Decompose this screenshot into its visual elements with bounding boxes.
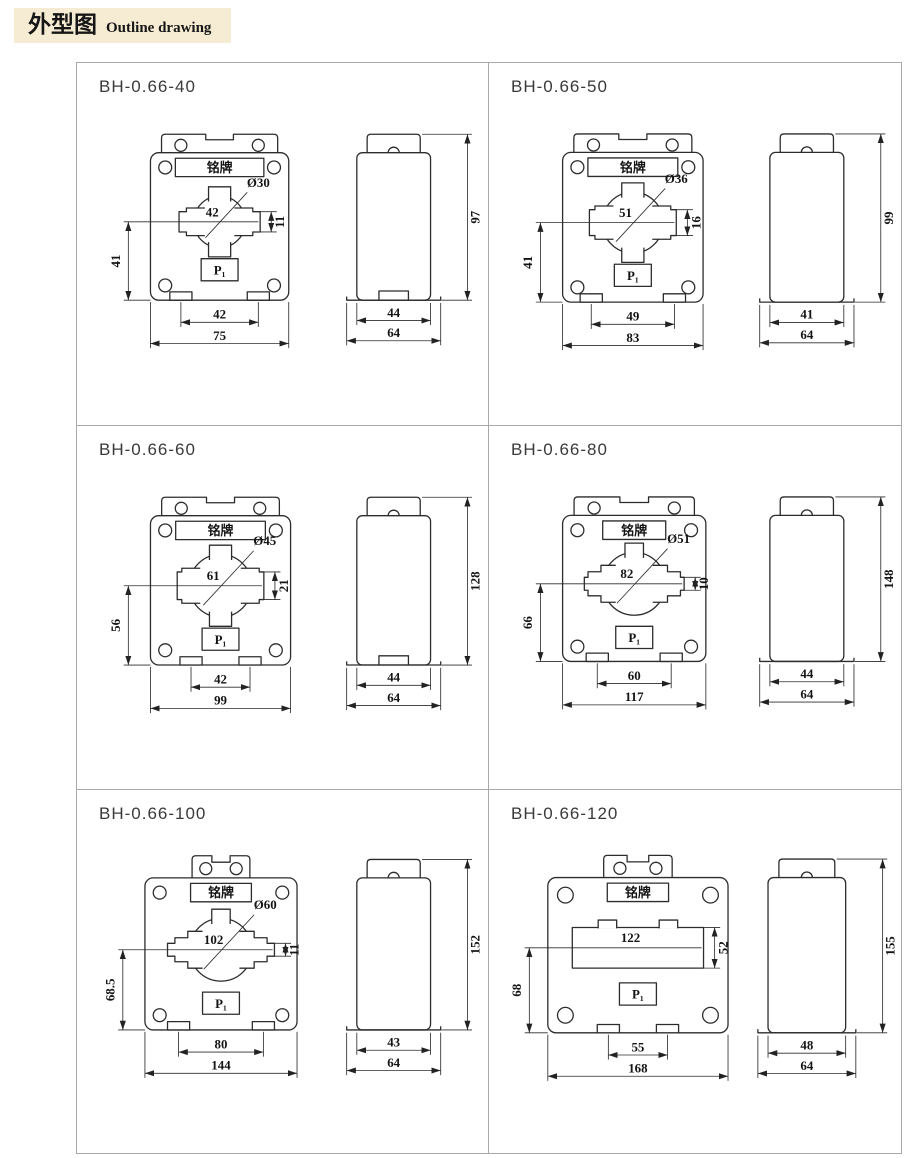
views: 铭牌5116Ø36P₁414983 416499 [509,107,901,426]
left-height-label: 66 [520,616,535,629]
side-height-label: 99 [881,212,896,225]
left-height-label: 56 [109,619,123,632]
side-view: 4364152 [331,834,488,1153]
views: 铭牌12252P₁6855168 4864155 [509,834,901,1153]
foot [580,294,602,302]
aperture-bottom-notch [622,248,644,263]
p1-label: P₁ [215,996,227,1010]
aperture-top-notch [659,920,677,928]
mount-hole [175,503,187,515]
mount-hole [650,862,662,874]
hole-width-label: 51 [619,205,632,220]
page-title-en: Outline drawing [106,21,211,36]
aperture-top-notch [598,920,616,928]
foot [247,292,269,300]
front-view: 铭牌12252P₁6855168 [509,834,742,1153]
hole-width-label: 61 [207,570,220,584]
model-title: BH-0.66-80 [511,440,901,462]
side-view: 416499 [744,107,901,426]
side-view: 4864155 [744,834,901,1153]
front-view: 铭牌6121Ø45P₁564299 [97,470,329,789]
hole-diameter-label: Ø51 [667,531,690,546]
left-height-label: 41 [520,256,535,269]
nameplate-label: 铭牌 [620,160,646,176]
overall-width-label: 144 [211,1058,231,1072]
mount-hole [254,503,266,515]
foot [663,294,685,302]
aperture-bottom-notch [209,242,231,257]
overall-width-label: 117 [625,689,644,704]
side-body [768,877,846,1032]
foot-span-label: 55 [631,1039,644,1054]
page-header: 外型图 Outline drawing [14,8,231,43]
side-view: 4464128 [331,470,488,789]
side-height-label: 148 [881,569,896,589]
foot [239,657,261,665]
hole-height-label: 11 [287,943,301,955]
side-bottom-width-label: 41 [800,307,813,322]
views: 铭牌6121Ø45P₁564299 4464128 [97,470,488,789]
side-height-label: 155 [883,936,898,955]
panel-bh-0-66-120: BH-0.66-120 铭牌12252P₁6855168 4864155 [489,790,901,1153]
aperture-top-notch [209,546,231,561]
p1-label: P₁ [214,263,226,277]
side-height-label: 97 [469,210,483,223]
model-title: BH-0.66-50 [511,77,901,99]
nameplate-label: 铭牌 [208,523,234,539]
mount-hole [587,139,599,151]
hole-diameter-label: Ø30 [247,176,270,190]
mount-hole [175,139,187,151]
overall-width-label: 168 [628,1060,648,1075]
front-view: 铭牌8210Ø51P₁6660117 [509,470,742,789]
overall-width-label: 99 [214,694,227,708]
foot [597,1024,619,1032]
hole-width-label: 122 [621,930,640,945]
nameplate-label: 铭牌 [625,885,651,901]
side-view: 4464148 [744,470,901,789]
hole-diameter-label: Ø36 [665,171,689,186]
model-title: BH-0.66-40 [99,77,488,99]
side-body [357,516,431,665]
side-body [770,152,844,302]
drawing-grid: BH-0.66-40 铭牌4211Ø30P₁414275 446497 BH-0… [76,62,902,1154]
hole-width-label: 42 [206,205,219,219]
page-title-zh: 外型图 [28,14,97,37]
aperture-top-notch [625,543,643,558]
side-view: 446497 [331,107,488,426]
p1-label: P₁ [215,633,227,647]
mount-hole [668,502,680,514]
views: 铭牌10211Ø60P₁68.580144 4364152 [97,834,488,1153]
foot-span-label: 80 [215,1037,228,1051]
nameplate-label: 铭牌 [207,160,233,176]
front-view: 铭牌5116Ø36P₁414983 [509,107,742,426]
front-view: 铭牌4211Ø30P₁414275 [97,107,329,426]
mount-hole [588,502,600,514]
foot [586,653,608,661]
aperture-bottom-notch [209,612,231,627]
side-bottom-width-label: 44 [388,306,401,320]
hole-height-label: 21 [277,580,291,593]
side-body [357,878,431,1030]
hole-height-label: 52 [716,941,731,954]
p1-label: P₁ [632,986,644,1001]
hole-height-label: 16 [688,216,703,229]
side-bottom-width-label: 44 [388,671,401,685]
aperture-top-notch [212,909,230,924]
side-overall-width-label: 64 [800,687,813,702]
foot-span-label: 49 [626,309,639,324]
mount-hole [200,862,212,874]
catalog-page: { "header": { "title_zh": "外型图", "title_… [0,0,910,1158]
side-bottom-width-label: 48 [800,1037,813,1052]
side-overall-width-label: 64 [800,1057,813,1072]
left-height-label: 68.5 [104,978,118,1001]
model-title: BH-0.66-120 [511,804,901,826]
views: 铭牌4211Ø30P₁414275 446497 [97,107,488,426]
p1-label: P₁ [628,630,640,645]
overall-width-label: 75 [213,329,226,343]
panel-bh-0-66-100: BH-0.66-100 铭牌10211Ø60P₁68.580144 436415… [77,790,489,1153]
mount-hole [614,862,626,874]
left-height-label: 68 [509,983,524,996]
mount-hole [666,139,678,151]
foot [656,1024,678,1032]
panel-bh-0-66-80: BH-0.66-80 铭牌8210Ø51P₁6660117 4464148 [489,426,901,789]
side-overall-width-label: 64 [388,691,401,705]
mount-hole [252,139,264,151]
foot-span-label: 42 [213,308,226,322]
side-height-label: 128 [469,571,483,591]
foot [252,1021,274,1029]
panel-bh-0-66-60: BH-0.66-60 铭牌6121Ø45P₁564299 4464128 [77,426,489,789]
side-body [357,153,431,300]
side-height-label: 152 [469,935,483,954]
model-title: BH-0.66-100 [99,804,488,826]
model-title: BH-0.66-60 [99,440,488,462]
foot [180,657,202,665]
aperture-top-notch [622,183,644,198]
hole-diameter-label: Ø60 [254,898,277,912]
side-body [770,516,844,662]
side-overall-width-label: 64 [388,1055,401,1069]
foot-span-label: 60 [628,668,641,683]
front-view: 铭牌10211Ø60P₁68.580144 [97,834,329,1153]
mount-hole [230,862,242,874]
foot [660,653,682,661]
aperture-top-notch [209,187,231,202]
hole-height-label: 10 [696,578,711,591]
side-overall-width-label: 64 [388,326,401,340]
overall-width-label: 83 [626,330,639,345]
hole-width-label: 82 [620,567,633,582]
side-overall-width-label: 64 [800,327,813,342]
nameplate-label: 铭牌 [208,885,234,901]
foot [170,292,192,300]
panel-bh-0-66-40: BH-0.66-40 铭牌4211Ø30P₁414275 446497 [77,63,489,426]
nameplate-label: 铭牌 [621,523,647,539]
p1-label: P₁ [627,268,639,283]
views: 铭牌8210Ø51P₁6660117 4464148 [509,470,901,789]
foot-span-label: 42 [214,673,227,687]
panel-bh-0-66-50: BH-0.66-50 铭牌5116Ø36P₁414983 416499 [489,63,901,426]
left-height-label: 41 [109,255,123,268]
side-bottom-width-label: 43 [388,1035,401,1049]
hole-diameter-label: Ø45 [253,535,276,549]
hole-height-label: 11 [273,216,287,228]
side-bottom-width-label: 44 [800,666,813,681]
hole-width-label: 102 [204,933,223,947]
foot [168,1021,190,1029]
